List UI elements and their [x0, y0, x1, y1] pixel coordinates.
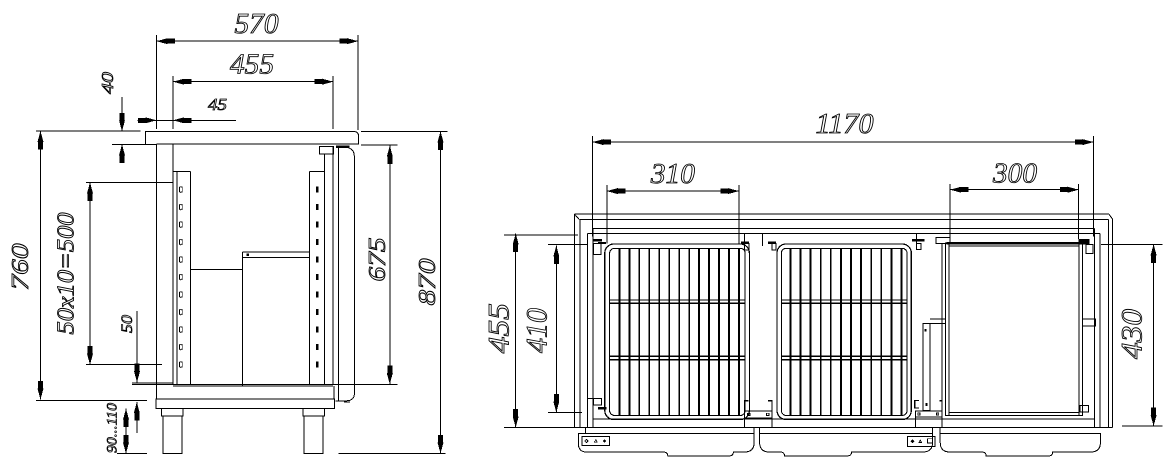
svg-text:455: 455: [230, 49, 274, 80]
svg-text:430: 430: [1116, 309, 1149, 359]
svg-text:675: 675: [365, 238, 391, 282]
svg-text:90...110: 90...110: [105, 402, 121, 453]
svg-text:45: 45: [208, 95, 227, 114]
svg-text:570: 570: [235, 9, 279, 40]
svg-text:50: 50: [119, 315, 136, 333]
svg-text:1170: 1170: [816, 109, 874, 140]
svg-text:300: 300: [992, 158, 1037, 189]
svg-text:455: 455: [483, 303, 516, 353]
svg-text:310: 310: [650, 159, 695, 190]
svg-text:410: 410: [521, 308, 554, 353]
svg-text:40: 40: [98, 71, 117, 94]
svg-text:50x10=500: 50x10=500: [54, 213, 80, 335]
svg-text:760: 760: [8, 244, 34, 291]
svg-text:870: 870: [415, 259, 441, 306]
